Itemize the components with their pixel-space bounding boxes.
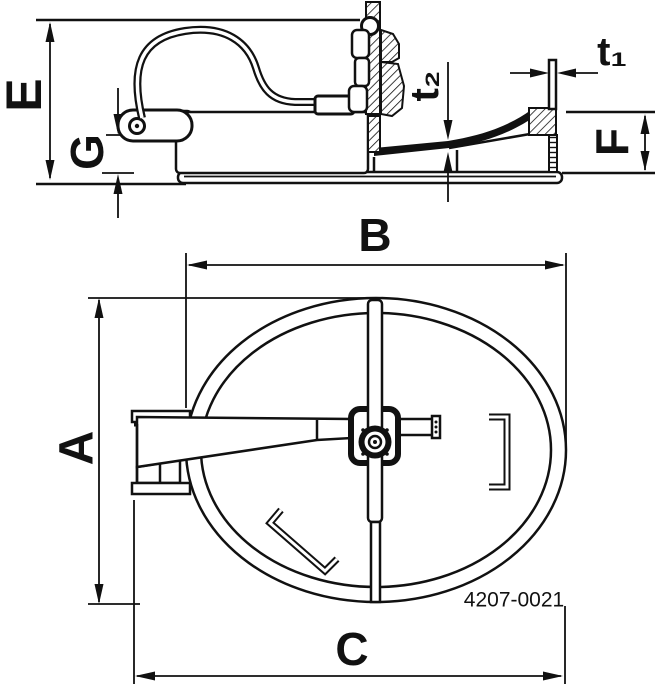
part-number: 4207-0021 [464, 589, 564, 612]
cam-block-lower [381, 62, 404, 116]
cover-edge-block [529, 108, 556, 135]
dimension-label-a: A [51, 431, 104, 466]
neck-ring-section [549, 135, 557, 172]
dimension-label-t1: t₁ [597, 30, 627, 74]
dimension-label-b: B [358, 209, 391, 261]
dimension-label-g: G [61, 134, 113, 170]
center-nut [359, 426, 392, 459]
hinge-assembly [118, 110, 192, 141]
dimension-label-e: E [0, 78, 52, 111]
dimension-label-t2: t₂ [403, 70, 447, 101]
technical-drawing: E G [0, 0, 656, 687]
neck-body [168, 111, 368, 173]
dimension-label-c: C [335, 623, 368, 675]
dimension-label-f: F [586, 128, 638, 156]
spindle [396, 416, 440, 438]
drawing-canvas: E G [0, 0, 656, 687]
cover-rim-plate [549, 60, 556, 109]
